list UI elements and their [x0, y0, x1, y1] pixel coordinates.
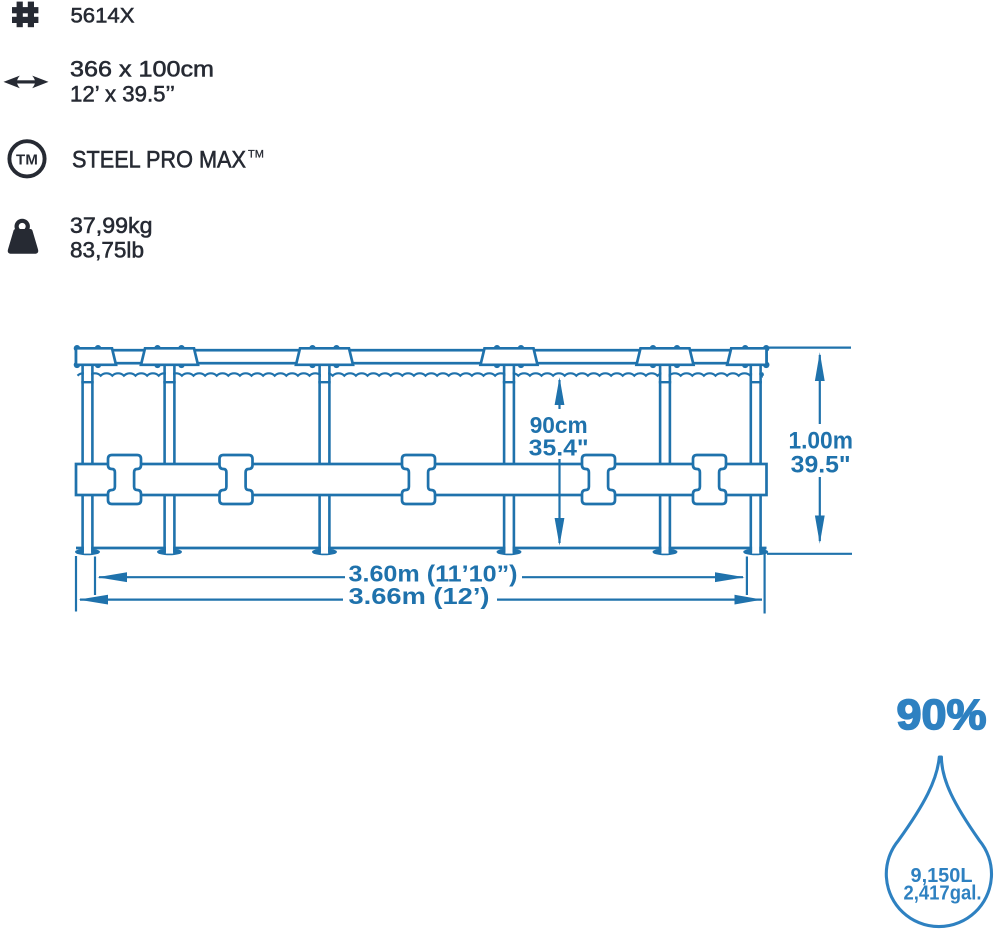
- svg-text:TM: TM: [16, 151, 38, 168]
- svg-text:1.00m: 1.00m: [788, 428, 853, 455]
- svg-text:2,417gal.: 2,417gal.: [904, 883, 982, 905]
- svg-text:12’ x 39.5’’: 12’ x 39.5’’: [70, 82, 175, 107]
- svg-text:3.66m (12’): 3.66m (12’): [349, 583, 490, 609]
- svg-text:37,99kg: 37,99kg: [70, 213, 153, 238]
- svg-text:35.4": 35.4": [529, 435, 589, 461]
- svg-text:39.5": 39.5": [791, 452, 851, 479]
- svg-text:366 x 100cm: 366 x 100cm: [70, 57, 214, 82]
- svg-text:90%: 90%: [897, 692, 987, 739]
- svg-text:TM: TM: [248, 149, 264, 161]
- svg-text:83,75lb: 83,75lb: [70, 237, 144, 262]
- svg-text:STEEL PRO MAX: STEEL PRO MAX: [72, 147, 246, 174]
- svg-text:5614X: 5614X: [71, 3, 135, 27]
